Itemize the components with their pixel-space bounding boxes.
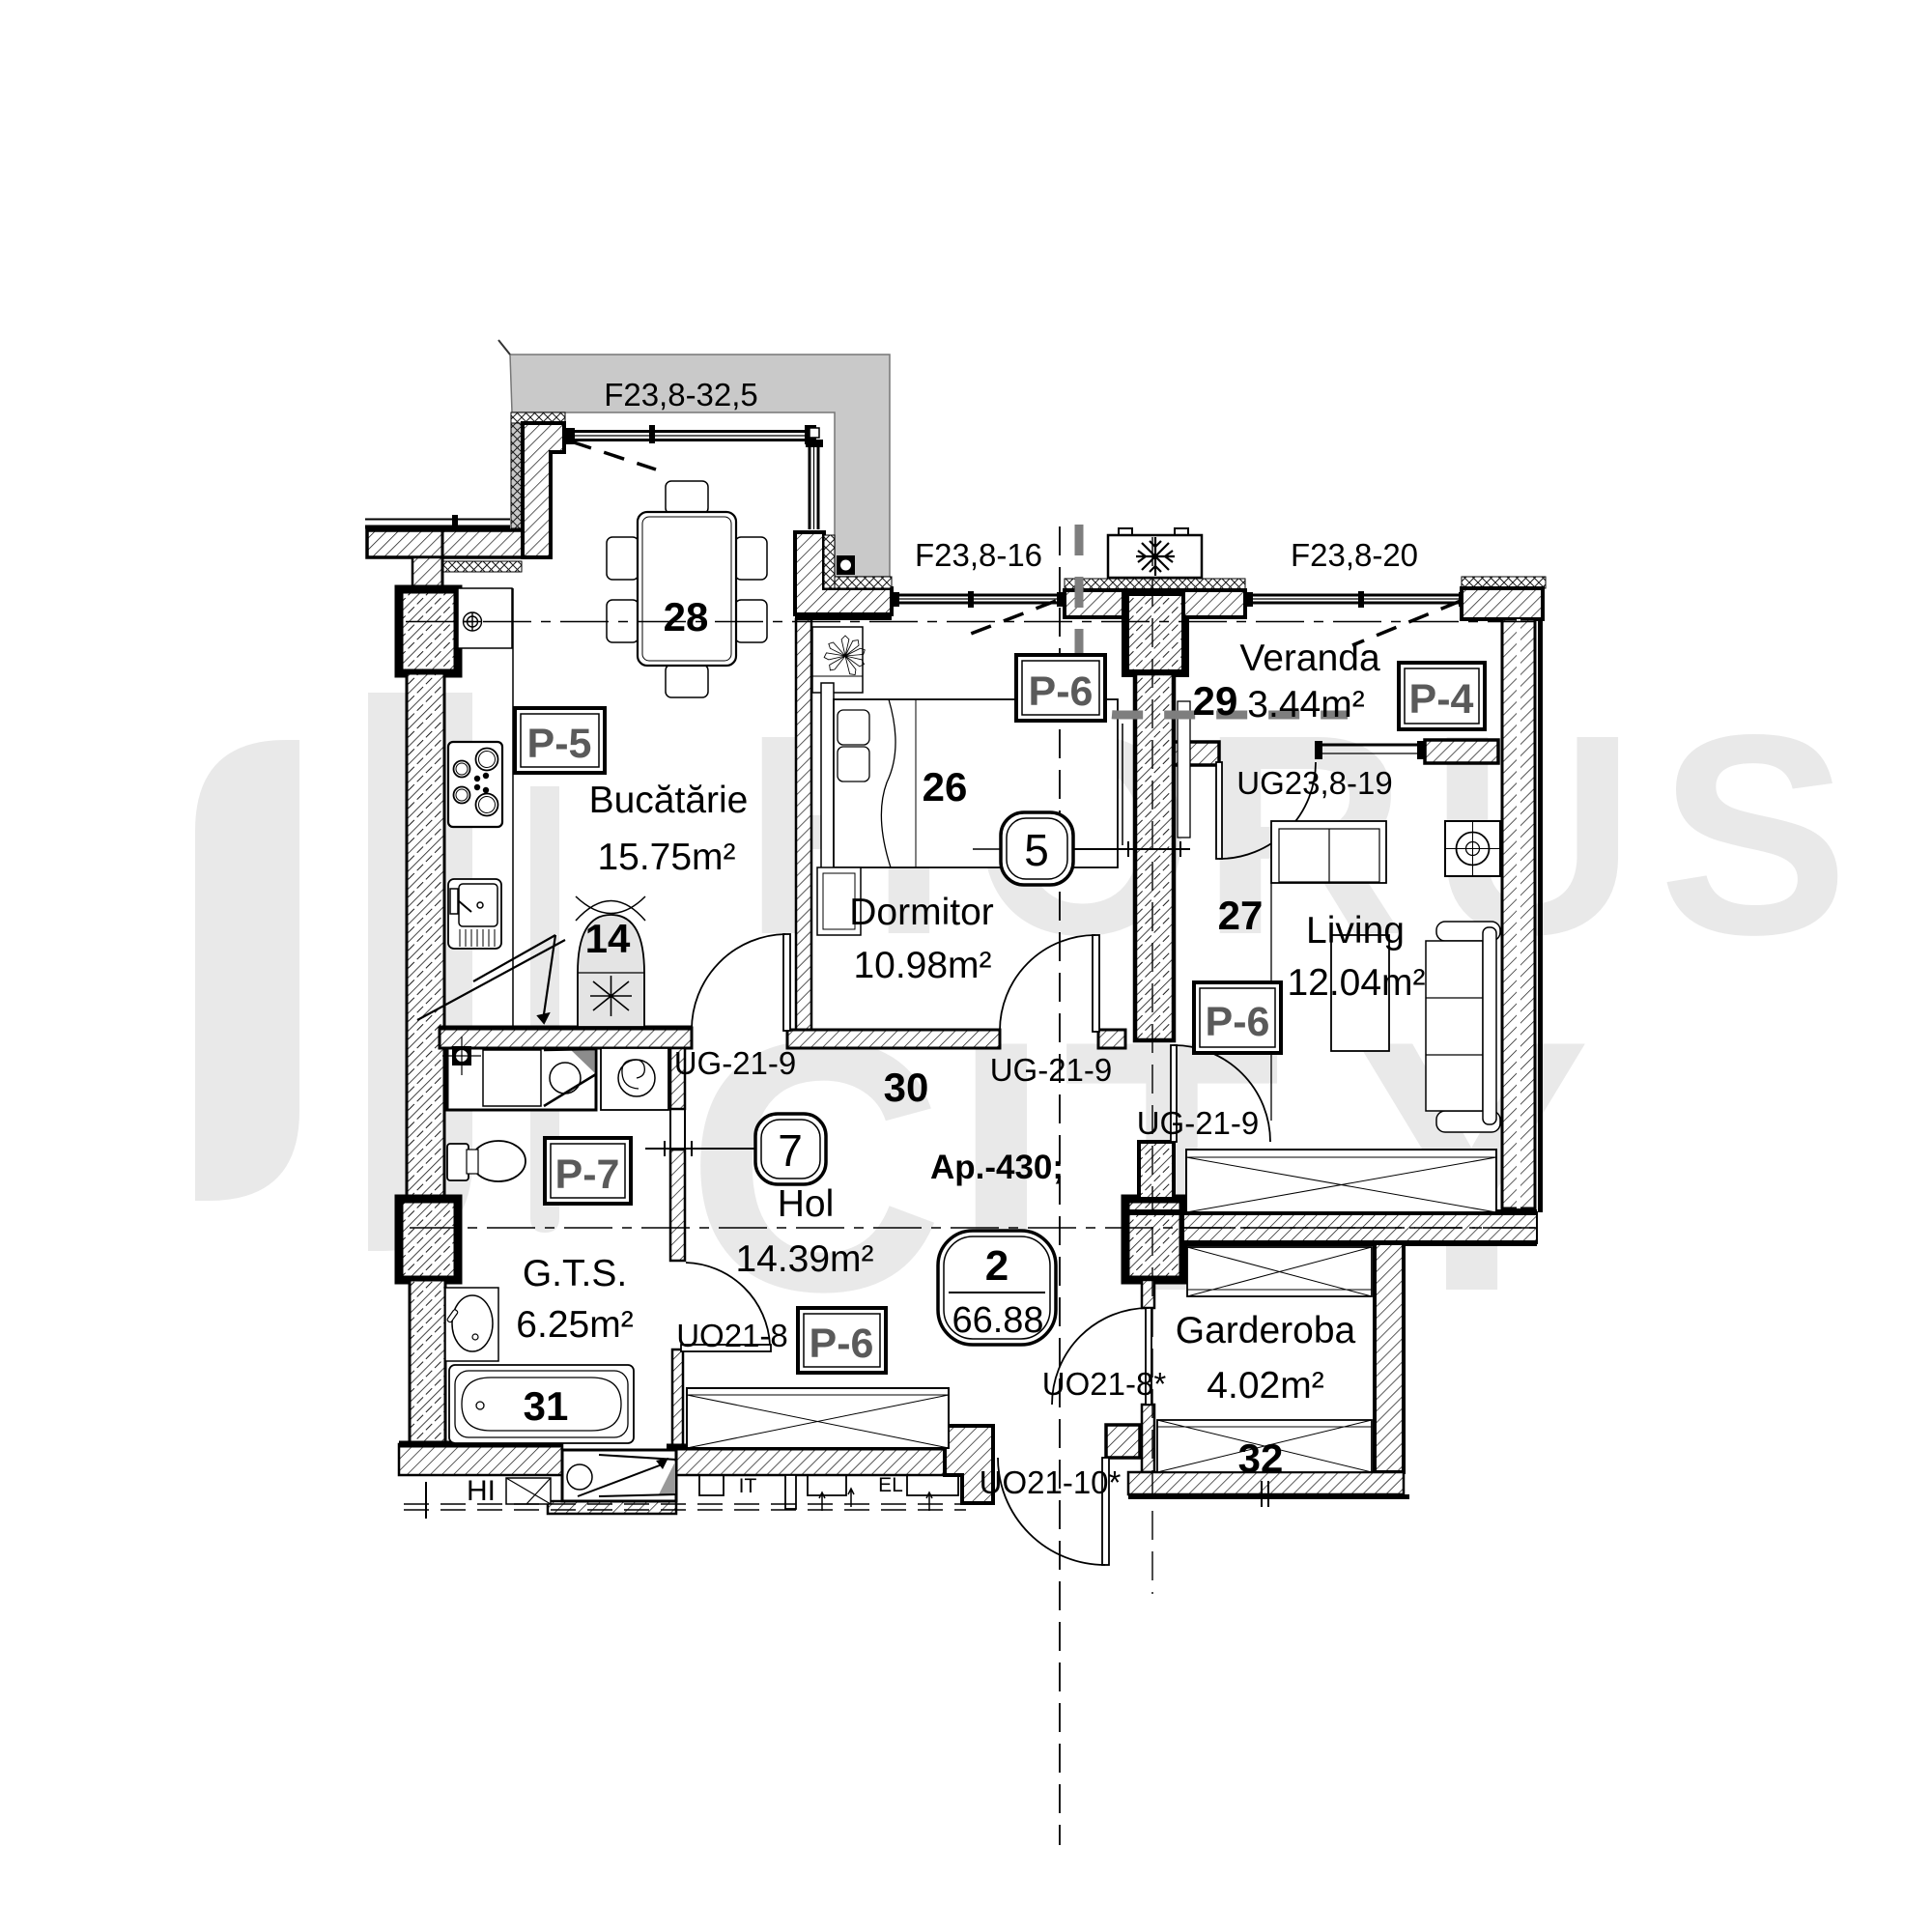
svg-text:15.75m²: 15.75m² bbox=[597, 837, 735, 878]
svg-text:UO21-10*: UO21-10* bbox=[980, 1464, 1122, 1500]
svg-text:P-6: P-6 bbox=[1029, 668, 1094, 715]
svg-text:UG-21-9: UG-21-9 bbox=[990, 1052, 1113, 1088]
svg-text:27: 27 bbox=[1218, 893, 1264, 938]
svg-text:UO21-8: UO21-8 bbox=[676, 1318, 788, 1353]
svg-text:4.02m²: 4.02m² bbox=[1207, 1365, 1323, 1406]
svg-text:28: 28 bbox=[664, 594, 709, 639]
svg-text:2: 2 bbox=[985, 1242, 1009, 1290]
svg-text:UG-21-9: UG-21-9 bbox=[674, 1045, 797, 1081]
svg-text:P-4: P-4 bbox=[1409, 676, 1474, 723]
svg-text:12.04m²: 12.04m² bbox=[1287, 962, 1425, 1004]
svg-text:UG23,8-19: UG23,8-19 bbox=[1236, 765, 1392, 801]
svg-text:Hol: Hol bbox=[778, 1183, 835, 1225]
svg-text:Dormitor: Dormitor bbox=[849, 892, 994, 933]
svg-text:HI: HI bbox=[467, 1475, 496, 1507]
svg-text:30: 30 bbox=[884, 1065, 929, 1110]
svg-text:P-5: P-5 bbox=[527, 721, 592, 767]
svg-text:10.98m²: 10.98m² bbox=[853, 945, 991, 986]
svg-text:F23,8-16: F23,8-16 bbox=[915, 537, 1042, 573]
svg-text:14.39m²: 14.39m² bbox=[735, 1238, 873, 1280]
svg-text:3.44m²: 3.44m² bbox=[1247, 684, 1364, 725]
svg-text:UG-21-9: UG-21-9 bbox=[1137, 1105, 1260, 1141]
svg-text:P-6: P-6 bbox=[810, 1321, 874, 1367]
svg-text:Veranda: Veranda bbox=[1239, 638, 1380, 679]
svg-text:F23,8-20: F23,8-20 bbox=[1291, 537, 1418, 573]
svg-text:66.88: 66.88 bbox=[952, 1300, 1043, 1341]
svg-text:EL: EL bbox=[878, 1474, 903, 1496]
svg-text:F23,8-32,5: F23,8-32,5 bbox=[604, 377, 758, 412]
svg-text:IT: IT bbox=[739, 1475, 757, 1497]
svg-text:S: S bbox=[1659, 675, 1849, 994]
svg-text:7: 7 bbox=[778, 1125, 803, 1176]
svg-text:Garderoba: Garderoba bbox=[1176, 1310, 1356, 1351]
svg-text:26: 26 bbox=[923, 764, 968, 810]
svg-text:P-7: P-7 bbox=[555, 1151, 620, 1198]
svg-text:29: 29 bbox=[1193, 678, 1238, 724]
svg-text:32: 32 bbox=[1238, 1435, 1284, 1481]
svg-text:P-6: P-6 bbox=[1206, 999, 1270, 1045]
svg-text:5: 5 bbox=[1024, 825, 1049, 875]
svg-text:Bucătărie: Bucătărie bbox=[589, 780, 749, 821]
svg-text:UO21-8*: UO21-8* bbox=[1042, 1366, 1167, 1402]
svg-text:Ap.-430;: Ap.-430; bbox=[930, 1149, 1064, 1186]
svg-text:14: 14 bbox=[585, 916, 631, 961]
svg-text:Living: Living bbox=[1306, 910, 1405, 952]
svg-text:31: 31 bbox=[524, 1383, 569, 1429]
svg-text:G.T.S.: G.T.S. bbox=[523, 1253, 627, 1294]
svg-text:6.25m²: 6.25m² bbox=[516, 1304, 633, 1346]
